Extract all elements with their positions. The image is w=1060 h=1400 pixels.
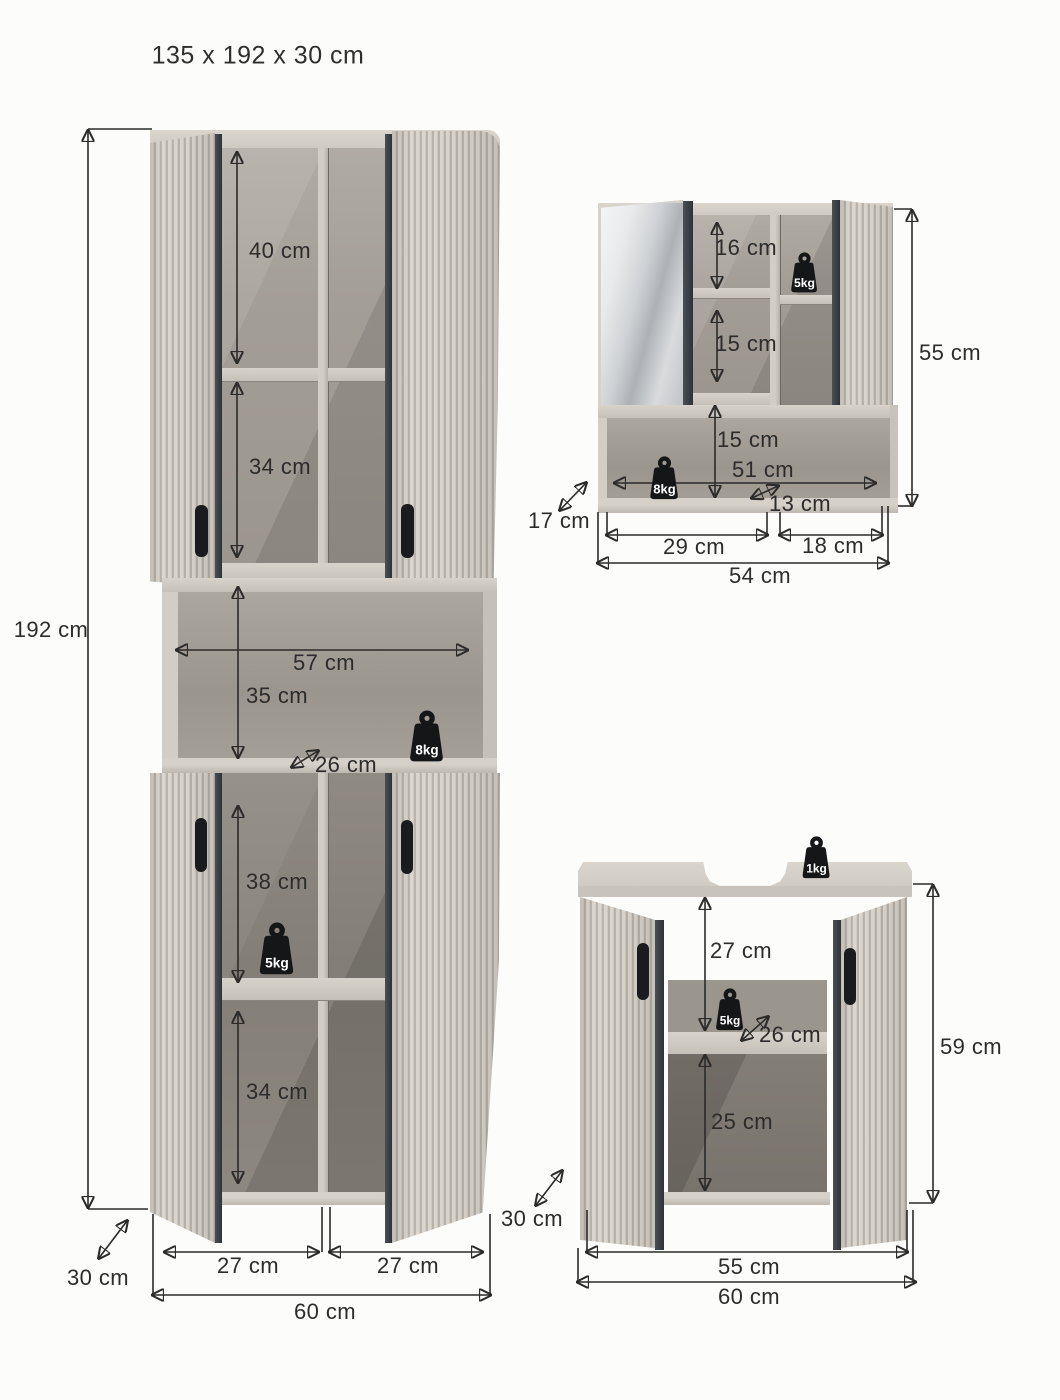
tall-width-label: 60 cm bbox=[294, 1299, 356, 1325]
mirror-open-shelf-width-label: 51 cm bbox=[732, 457, 794, 483]
sink-left-door-edge bbox=[655, 920, 664, 1250]
mirror-door-edge bbox=[683, 201, 693, 415]
sink-inner-width-label: 55 cm bbox=[718, 1254, 780, 1280]
tall-lower-right-door-handle bbox=[401, 820, 413, 874]
furniture-dimension-diagram: 135 x 192 x 30 cm bbox=[0, 0, 1060, 1400]
tall-niche-height-label: 35 cm bbox=[246, 683, 308, 709]
mirror-inner-depth-label: 13 cm bbox=[769, 491, 831, 517]
weight-icon-tall-shelf: 5kg bbox=[252, 922, 302, 979]
tall-upper-interior bbox=[222, 148, 385, 583]
sink-shelf-depth-label: 26 cm bbox=[759, 1022, 821, 1048]
mirror-right-door bbox=[840, 200, 893, 418]
mirror-shelf-right bbox=[780, 295, 832, 305]
tall-depth-left-label: 30 cm bbox=[67, 1265, 129, 1291]
weight-label: 5kg bbox=[794, 276, 815, 290]
mirror-niche-floor bbox=[598, 498, 898, 513]
mirror-top-compartment-label: 16 cm bbox=[715, 235, 777, 261]
sink-upper-compartment-label: 27 cm bbox=[710, 938, 772, 964]
sink-right-door-handle bbox=[844, 948, 856, 1005]
mirror-width-label: 54 cm bbox=[729, 563, 791, 589]
sink-height-label: 59 cm bbox=[940, 1034, 1002, 1060]
weight-icon-mirror-bottom: 8kg bbox=[645, 456, 684, 503]
mirror-middle-compartment-label: 15 cm bbox=[715, 331, 777, 357]
weight-label: 1kg bbox=[806, 862, 827, 876]
tall-upper-shelf-left bbox=[222, 368, 318, 382]
mirror-niche-right-wall bbox=[890, 405, 898, 513]
tall-lower-interior bbox=[222, 773, 385, 1205]
sink-floor bbox=[664, 1192, 830, 1205]
tall-upper-shelf-right bbox=[328, 368, 385, 382]
tall-niche-left-wall bbox=[162, 592, 178, 760]
tall-lower-left-door-edge bbox=[215, 773, 222, 1243]
mirror-niche-ceiling bbox=[598, 405, 893, 419]
sink-lower-compartment-label: 25 cm bbox=[711, 1109, 773, 1135]
tall-niche-width-label: 57 cm bbox=[293, 650, 355, 676]
mirror-shelf-left bbox=[693, 288, 770, 299]
tall-height-label: 192 cm bbox=[14, 617, 89, 643]
tall-niche-top-board bbox=[162, 578, 497, 593]
tall-left-door-width-label: 27 cm bbox=[217, 1253, 279, 1279]
mirror-right-door-edge bbox=[832, 200, 840, 415]
tall-upper-right-door-edge bbox=[385, 134, 392, 583]
tall-upper-left-door-handle bbox=[195, 505, 208, 557]
sink-top-panel-front-edge bbox=[578, 886, 912, 897]
mirror-depth-label: 17 cm bbox=[528, 508, 590, 534]
sink-left-door-handle bbox=[637, 943, 649, 1000]
weight-label: 8kg bbox=[415, 743, 438, 758]
tall-top-compartment-label: 40 cm bbox=[249, 238, 311, 264]
weight-label: 8kg bbox=[653, 481, 676, 496]
weight-label: 5kg bbox=[265, 955, 289, 970]
mirror-open-shelf-height-label: 15 cm bbox=[717, 427, 779, 453]
tall-bottom-compartment-label: 34 cm bbox=[246, 1079, 308, 1105]
weight-icon-mirror-shelf: 5kg bbox=[786, 252, 823, 296]
tall-lower-floor bbox=[222, 1192, 385, 1205]
page-title: 135 x 192 x 30 cm bbox=[152, 42, 365, 71]
sink-right-door-edge bbox=[833, 920, 841, 1250]
sink-top-panel bbox=[578, 862, 912, 888]
tall-depth-right-label: 30 cm bbox=[501, 1206, 563, 1232]
tall-upper-divider bbox=[318, 148, 329, 583]
tall-niche-right-wall bbox=[483, 592, 497, 760]
mirror-right-section-label: 18 cm bbox=[802, 533, 864, 559]
tall-upper-left-door-edge bbox=[215, 134, 222, 583]
mirror-height-label: 55 cm bbox=[919, 340, 981, 366]
tall-upper-right-door-handle bbox=[401, 504, 414, 558]
tall-lower-left-door-handle bbox=[195, 818, 207, 872]
tall-niche-depth-label: 26 cm bbox=[315, 752, 377, 778]
weight-icon-sink-top: 1kg bbox=[795, 836, 838, 882]
tall-third-compartment-label: 38 cm bbox=[246, 869, 308, 895]
tall-lower-shelf bbox=[222, 978, 385, 1001]
sink-width-label: 60 cm bbox=[718, 1284, 780, 1310]
tall-second-compartment-label: 34 cm bbox=[249, 454, 311, 480]
mirror-left-section-label: 29 cm bbox=[663, 534, 725, 560]
tall-lower-right-door-edge bbox=[385, 773, 392, 1243]
weight-icon-sink-shelf: 5kg bbox=[710, 988, 750, 1034]
weight-label: 5kg bbox=[720, 1014, 741, 1028]
tall-right-door-width-label: 27 cm bbox=[377, 1253, 439, 1279]
weight-icon-tall-niche: 8kg bbox=[404, 710, 450, 766]
mirror-door bbox=[598, 200, 683, 417]
